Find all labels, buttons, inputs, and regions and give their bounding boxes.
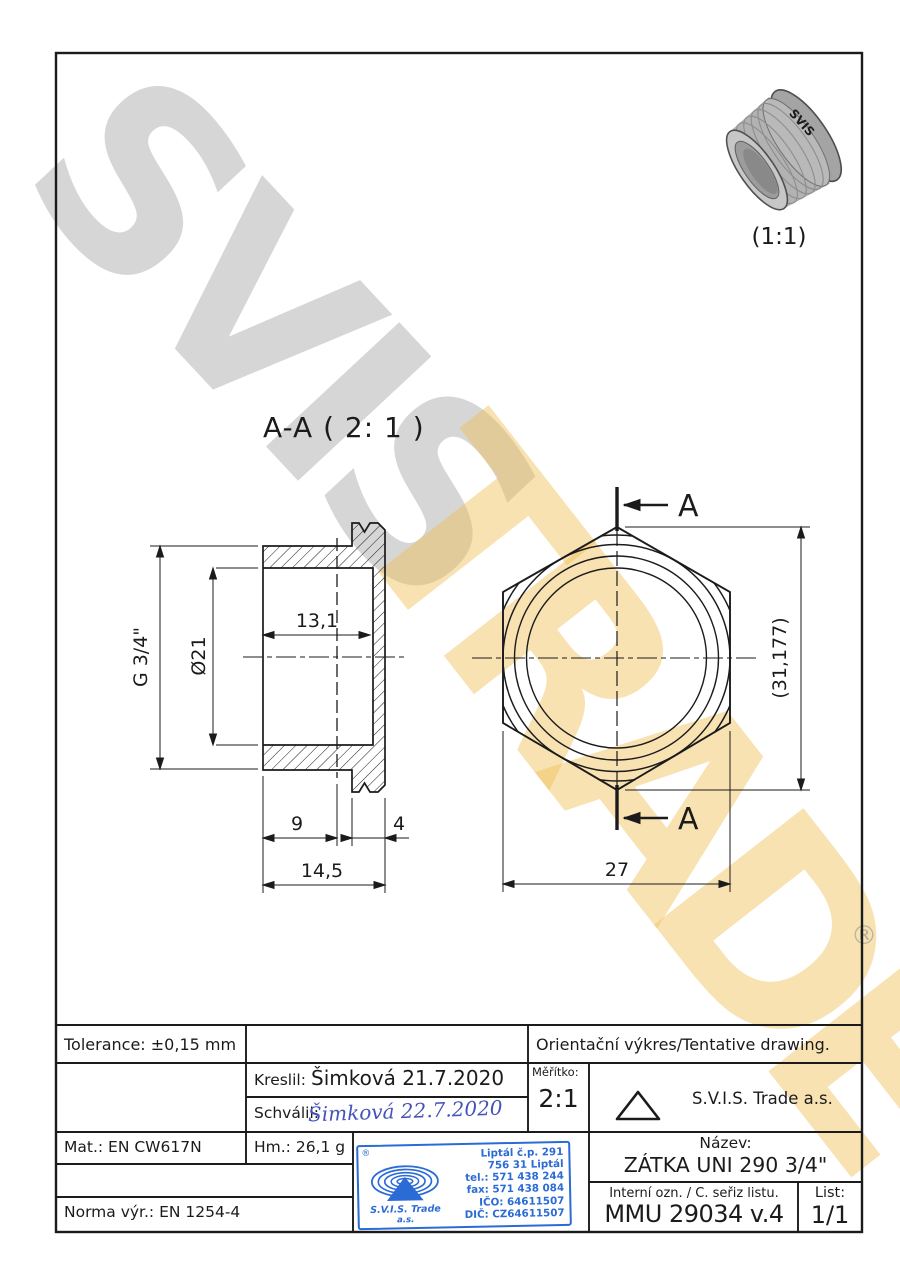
material-text: Mat.: EN CW617N	[64, 1138, 202, 1156]
right-view-hexagon: A A (31,177) 27	[472, 487, 810, 892]
dim-thread-length: 9	[291, 813, 303, 835]
interni-value: MMU 29034 v.4	[593, 1200, 795, 1228]
part-photo: SVIS	[712, 80, 853, 224]
stamp-company-name: S.V.I.S. Trade	[370, 1204, 441, 1215]
dim-across-corners: (31,177)	[769, 617, 791, 698]
stamp-logo	[367, 1160, 442, 1206]
company-name: S.V.I.S. Trade a.s.	[692, 1089, 833, 1108]
sheet-frame	[56, 53, 862, 1232]
photo-caption: (1:1)	[752, 224, 807, 250]
list-value: 1/1	[798, 1201, 862, 1229]
drawing-sheet: SVIS TRADE ® SVIS (1:1)	[0, 0, 900, 1288]
cut-label-bottom: A	[678, 802, 699, 837]
company-stamp: ® S.V.I.S. Trade a.s. Liptál č.p. 291 75…	[356, 1141, 572, 1230]
stamp-registered-mark: ®	[361, 1149, 370, 1159]
stamp-company-suffix: a.s.	[397, 1216, 414, 1225]
list-label: List:	[798, 1185, 862, 1201]
weight-text: Hm.: 26,1 g	[254, 1138, 345, 1156]
stamp-dic: DIČ: CZ64611507	[451, 1207, 564, 1222]
nazev-value: ZÁTKA UNI 290 3/4"	[589, 1153, 862, 1177]
dim-bore-depth: 13,1	[296, 610, 338, 632]
dim-bore-diameter: Ø21	[188, 636, 210, 675]
left-view-section: G 3/4" Ø21 13,1 9	[130, 523, 409, 893]
kreslil-value: Šimková 21.7.2020	[311, 1066, 504, 1090]
kreslil-label: Kreslil:	[254, 1071, 306, 1089]
company-logo	[602, 1082, 674, 1120]
tolerance-text: Tolerance: ±0,15 mm	[64, 1035, 236, 1054]
interni-label: Interní ozn. / C. seřiz listu.	[593, 1186, 795, 1201]
norma-text: Norma výr.: EN 1254-4	[64, 1203, 240, 1221]
dim-overall-length: 14,5	[301, 860, 343, 882]
section-title: A-A ( 2: 1 )	[263, 411, 425, 444]
dim-thread: G 3/4"	[130, 627, 152, 687]
tentative-note: Orientační výkres/Tentative drawing.	[536, 1035, 830, 1054]
cut-label-top: A	[678, 489, 699, 524]
dim-collar-width: 4	[393, 813, 405, 835]
nazev-label: Název:	[589, 1134, 862, 1152]
dim-across-flats: 27	[605, 859, 629, 881]
meritko-value: 2:1	[528, 1084, 589, 1113]
meritko-label: Měřítko:	[532, 1065, 579, 1079]
